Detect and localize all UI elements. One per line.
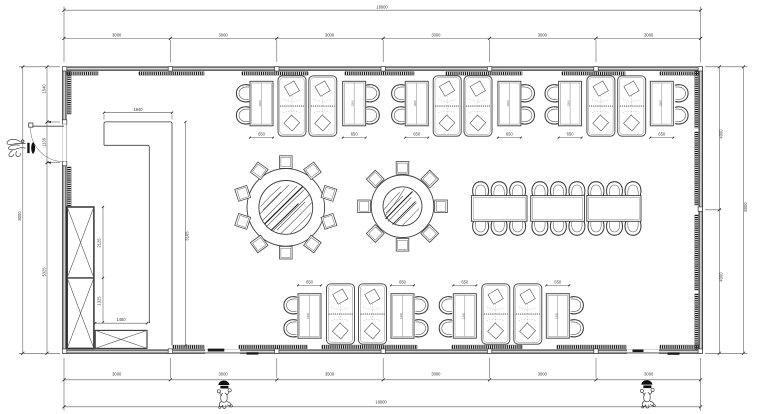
svg-text:1540: 1540 xyxy=(41,84,46,94)
svg-text:650: 650 xyxy=(399,280,407,285)
svg-text:3500: 3500 xyxy=(325,371,335,376)
svg-text:1940: 1940 xyxy=(133,107,143,112)
svg-text:3000: 3000 xyxy=(644,371,654,376)
svg-text:650: 650 xyxy=(413,132,421,137)
svg-text:3000: 3000 xyxy=(431,33,441,38)
svg-text:650: 650 xyxy=(506,132,514,137)
svg-text:8000: 8000 xyxy=(17,211,22,221)
svg-text:650: 650 xyxy=(258,132,266,137)
svg-text:8000: 8000 xyxy=(743,202,748,212)
svg-text:650: 650 xyxy=(658,132,666,137)
svg-text:1450: 1450 xyxy=(116,317,126,322)
svg-text:3000: 3000 xyxy=(219,371,229,376)
svg-text:650: 650 xyxy=(554,280,562,285)
svg-text:3000: 3000 xyxy=(112,371,122,376)
svg-text:650: 650 xyxy=(306,280,314,285)
svg-text:3000: 3000 xyxy=(431,371,441,376)
svg-text:18000: 18000 xyxy=(376,5,388,10)
svg-text:18000: 18000 xyxy=(375,399,387,404)
svg-text:650: 650 xyxy=(351,132,359,137)
svg-text:2125: 2125 xyxy=(97,238,102,248)
svg-text:650: 650 xyxy=(461,280,469,285)
svg-text:3000: 3000 xyxy=(112,33,122,38)
svg-text:1325: 1325 xyxy=(97,296,102,306)
svg-text:3000: 3000 xyxy=(219,33,229,38)
svg-text:3000: 3000 xyxy=(538,371,548,376)
svg-text:650: 650 xyxy=(567,132,575,137)
svg-text:3000: 3000 xyxy=(644,33,654,38)
svg-text:4000: 4000 xyxy=(719,272,724,282)
svg-text:3000: 3000 xyxy=(538,33,548,38)
svg-text:1135: 1135 xyxy=(41,137,46,147)
svg-text:4000: 4000 xyxy=(719,129,724,139)
svg-text:5325: 5325 xyxy=(41,267,46,277)
svg-text:3000: 3000 xyxy=(325,33,335,38)
svg-text:6165: 6165 xyxy=(184,231,189,241)
